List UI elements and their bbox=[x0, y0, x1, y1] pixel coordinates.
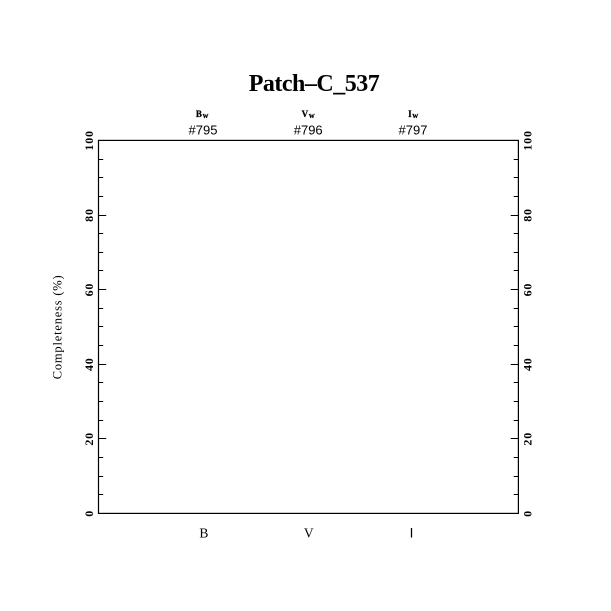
svg-text:B: B bbox=[199, 526, 208, 541]
svg-text:#796: #796 bbox=[294, 123, 323, 138]
svg-text:I: I bbox=[410, 526, 414, 541]
svg-text:20: 20 bbox=[521, 432, 535, 446]
svg-text:60: 60 bbox=[521, 283, 535, 297]
svg-text:#797: #797 bbox=[399, 123, 428, 138]
svg-text:100: 100 bbox=[82, 130, 96, 150]
svg-text:100: 100 bbox=[521, 130, 535, 150]
svg-text:Iw: Iw bbox=[408, 109, 419, 120]
svg-text:Vw: Vw bbox=[302, 109, 316, 120]
svg-text:Bw: Bw bbox=[196, 109, 209, 120]
svg-text:V: V bbox=[304, 526, 314, 541]
svg-text:Completeness (%): Completeness (%) bbox=[51, 275, 65, 380]
svg-text:40: 40 bbox=[521, 357, 535, 371]
svg-text:40: 40 bbox=[82, 357, 96, 371]
svg-text:60: 60 bbox=[82, 283, 96, 297]
svg-text:Patch–C_537: Patch–C_537 bbox=[249, 71, 380, 97]
svg-text:0: 0 bbox=[82, 510, 96, 517]
svg-text:0: 0 bbox=[521, 510, 535, 517]
svg-text:80: 80 bbox=[521, 208, 535, 222]
svg-text:20: 20 bbox=[82, 432, 96, 446]
svg-text:80: 80 bbox=[82, 208, 96, 222]
svg-text:#795: #795 bbox=[189, 123, 218, 138]
